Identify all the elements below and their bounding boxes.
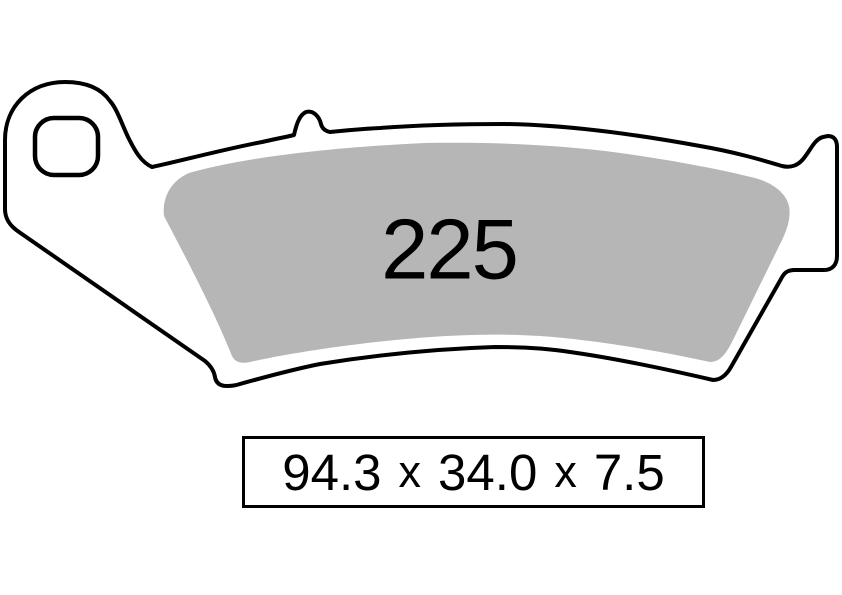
dimension-separator: x xyxy=(399,449,422,496)
dimension-thickness: 7.5 xyxy=(594,447,665,498)
part-number-label: 225 xyxy=(381,208,517,293)
brake-pad-catalog-drawing: 225 94.3 x 34.0 x 7.5 xyxy=(0,0,842,595)
dimension-length: 94.3 xyxy=(282,447,381,498)
dimension-width: 34.0 xyxy=(438,447,537,498)
mounting-hole xyxy=(35,118,98,175)
dimensions-box: 94.3 x 34.0 x 7.5 xyxy=(242,436,705,508)
dimension-separator: x xyxy=(554,449,577,496)
